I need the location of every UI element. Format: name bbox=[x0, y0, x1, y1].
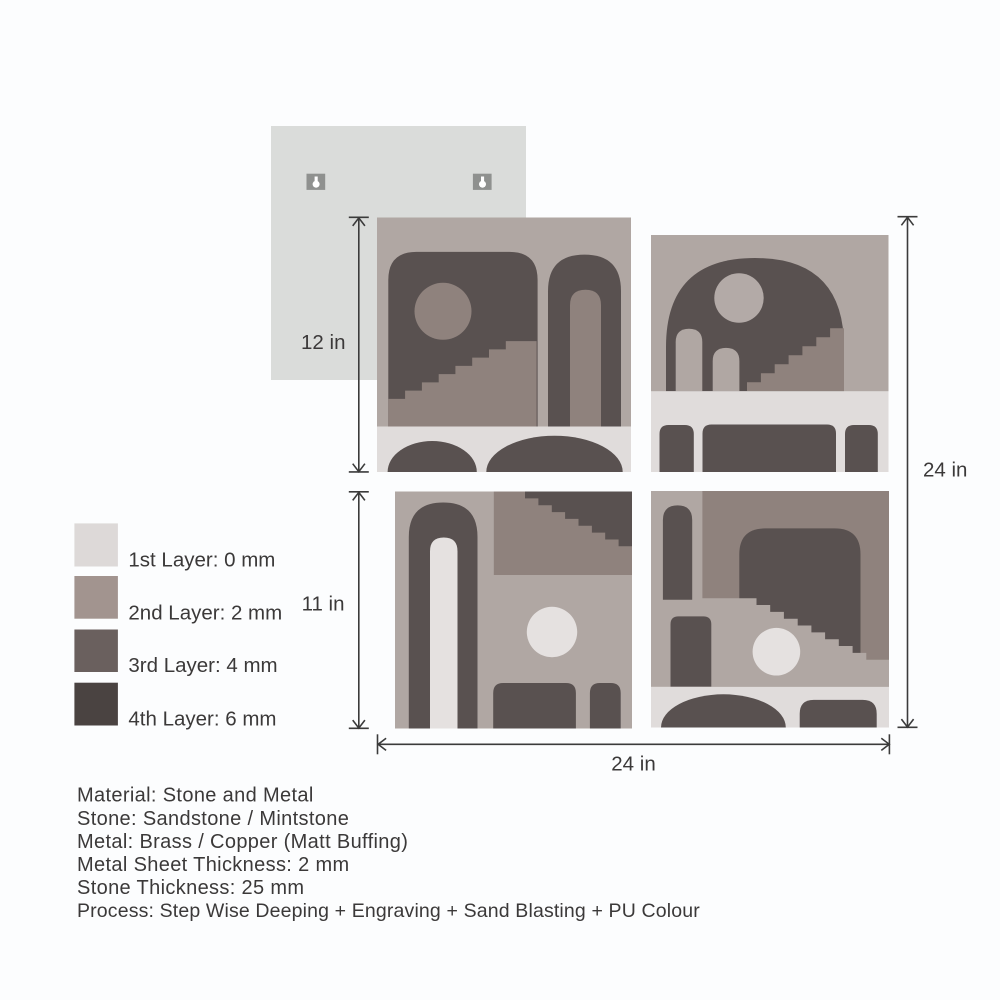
svg-text:Process: Step Wise Deeping + E: Process: Step Wise Deeping + Engraving +… bbox=[77, 900, 700, 922]
svg-text:Metal: Brass / Copper (Matt Bu: Metal: Brass / Copper (Matt Buffing) bbox=[77, 831, 408, 853]
svg-text:Metal Sheet Thickness: 2 mm: Metal Sheet Thickness: 2 mm bbox=[77, 854, 350, 876]
svg-text:Stone: Sandstone / Mintstone: Stone: Sandstone / Mintstone bbox=[77, 808, 349, 830]
svg-text:1st Layer: 0 mm: 1st Layer: 0 mm bbox=[128, 549, 275, 572]
svg-text:12 in: 12 in bbox=[301, 331, 345, 354]
svg-text:24 in: 24 in bbox=[923, 459, 967, 482]
svg-text:3rd Layer: 4 mm: 3rd Layer: 4 mm bbox=[128, 654, 277, 677]
svg-text:2nd Layer: 2 mm: 2nd Layer: 2 mm bbox=[128, 601, 282, 624]
svg-text:4th Layer: 6 mm: 4th Layer: 6 mm bbox=[128, 707, 276, 730]
svg-text:Material: Stone and Metal: Material: Stone and Metal bbox=[77, 785, 314, 807]
svg-text:11 in: 11 in bbox=[302, 593, 345, 616]
svg-text:24 in: 24 in bbox=[611, 753, 655, 776]
svg-text:Stone Thickness: 25 mm: Stone Thickness: 25 mm bbox=[77, 877, 304, 899]
